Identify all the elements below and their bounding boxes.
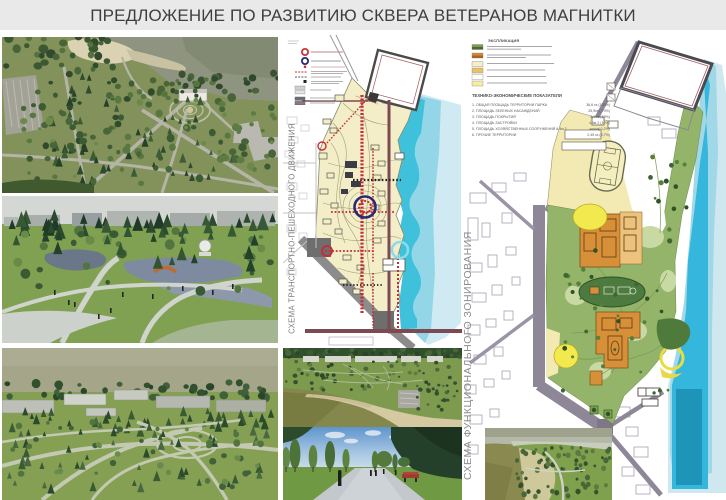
svg-text:ТЕХНИКО-ЭКОНОМИЧЕСКИЕ ПОКАЗАТЕ: ТЕХНИКО-ЭКОНОМИЧЕСКИЕ ПОКАЗАТЕЛИ (472, 93, 562, 98)
svg-text:( 0,2%): ( 0,2%) (598, 127, 610, 131)
svg-text:2,45 га (6,7%): 2,45 га (6,7%) (587, 133, 610, 137)
svg-text:4. ПЛОЩАДЬ ЗАСТРОЙКИ: 4. ПЛОЩАДЬ ЗАСТРОЙКИ (472, 121, 517, 125)
svg-text:ЭКСПЛИКАЦИЯ: ЭКСПЛИКАЦИЯ (488, 39, 519, 43)
svg-text:5. ПЛОЩАДЬ ХОЗЯЙСТВЕННЫХ СООРУ: 5. ПЛОЩАДЬ ХОЗЯЙСТВЕННЫХ СООРУЖЕНИЙ 8,4м… (472, 127, 567, 131)
svg-text:4,4м 2 (12%): 4,4м 2 (12%) (589, 121, 610, 125)
svg-text:6. ПРОЧИЕ ТЕРРИТОРИИ: 6. ПРОЧИЕ ТЕРРИТОРИИ (472, 133, 517, 137)
svg-text:1. ОБЩАЯ ПЛОЩАДЬ ТЕРРИТОРИИ ПА: 1. ОБЩАЯ ПЛОЩАДЬ ТЕРРИТОРИИ ПАРКА (472, 103, 548, 107)
svg-text:36,6 га (100%): 36,6 га (100%) (586, 103, 610, 107)
svg-text:5,4 га (15%): 5,4 га (15%) (590, 115, 610, 119)
svg-text:3. ПЛОЩАДЬ ПОКРЫТИЙ: 3. ПЛОЩАДЬ ПОКРЫТИЙ (472, 115, 516, 119)
svg-text:25,9га ( 70%): 25,9га ( 70%) (588, 109, 610, 113)
svg-text:2. ПЛОЩАДЬ ЗЕЛЕНЫХ НАСАЖДЕНИЙ: 2. ПЛОЩАДЬ ЗЕЛЕНЫХ НАСАЖДЕНИЙ (472, 109, 540, 113)
